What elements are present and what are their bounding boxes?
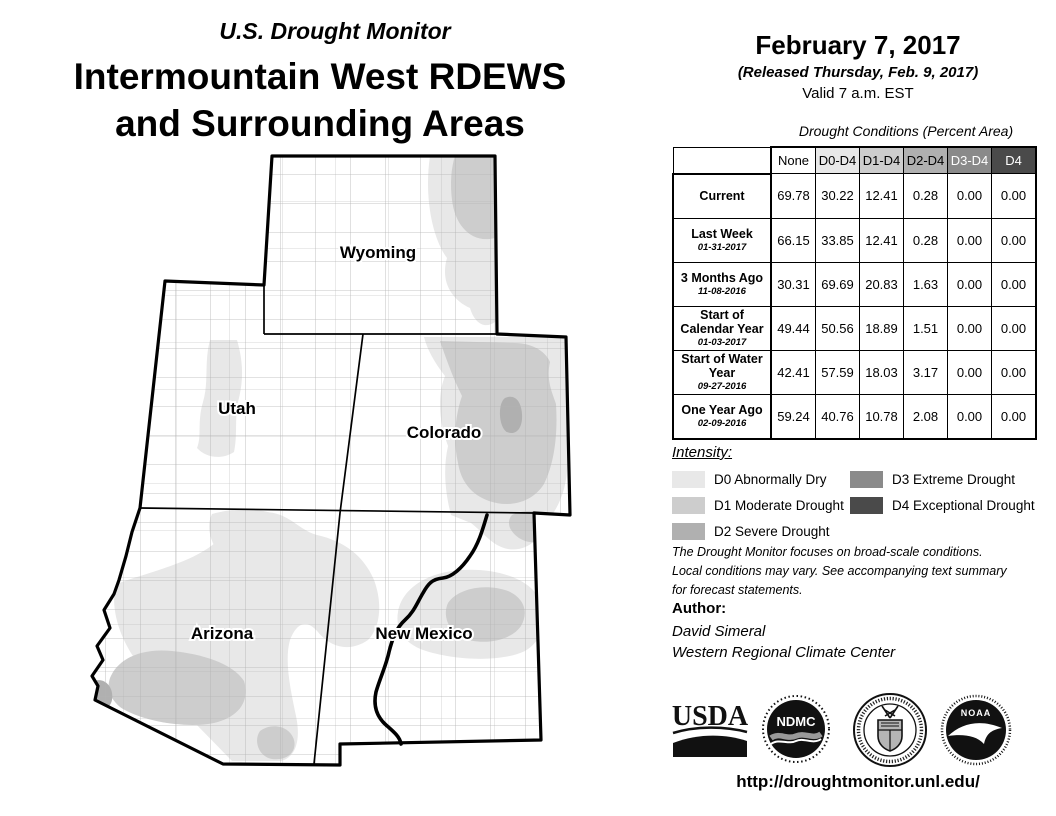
table-row-one-year-ago: One Year Ago02-09-2016 59.24 40.76 10.78… bbox=[673, 394, 1036, 439]
value-cell: 69.69 bbox=[816, 262, 860, 306]
row-label-last-week: Last Week01-31-2017 bbox=[673, 218, 771, 262]
value-cell: 33.85 bbox=[816, 218, 860, 262]
author-name: David Simeral bbox=[672, 621, 895, 642]
author-org: Western Regional Climate Center bbox=[672, 642, 895, 663]
table-header-row: None D0-D4 D1-D4 D2-D4 D3-D4 D4 bbox=[673, 147, 1036, 174]
noaa-logo: NOAA bbox=[938, 692, 1014, 768]
drought-monitor-url: http://droughtmonitor.unl.edu/ bbox=[660, 772, 1056, 792]
value-cell: 18.89 bbox=[860, 306, 904, 350]
table-title: Drought Conditions (Percent Area) bbox=[764, 123, 1048, 139]
intensity-legend: Intensity: D0 Abnormally Dry D1 Moderate… bbox=[672, 444, 1052, 549]
legend-item-d4: D4 Exceptional Drought bbox=[850, 497, 1035, 514]
svg-text:NDMC: NDMC bbox=[777, 714, 817, 729]
value-cell: 30.31 bbox=[771, 262, 816, 306]
value-cell: 0.00 bbox=[948, 174, 992, 219]
row-label-3-months-ago: 3 Months Ago11-08-2016 bbox=[673, 262, 771, 306]
valid-time: Valid 7 a.m. EST bbox=[660, 85, 1056, 102]
legend-item-d1: D1 Moderate Drought bbox=[672, 497, 850, 514]
col-header-d1d4: D1-D4 bbox=[860, 147, 904, 174]
d4-swatch bbox=[850, 497, 883, 514]
value-cell: 12.41 bbox=[860, 218, 904, 262]
value-cell: 1.51 bbox=[904, 306, 948, 350]
d3-swatch bbox=[850, 471, 883, 488]
commerce-seal-logo bbox=[852, 692, 928, 768]
legend-item-d2: D2 Severe Drought bbox=[672, 523, 850, 540]
col-header-none: None bbox=[771, 147, 816, 174]
col-header-d2d4: D2-D4 bbox=[904, 147, 948, 174]
value-cell: 12.41 bbox=[860, 174, 904, 219]
value-cell: 49.44 bbox=[771, 306, 816, 350]
value-cell: 0.00 bbox=[992, 350, 1037, 394]
info-panel: February 7, 2017 (Released Thursday, Feb… bbox=[660, 0, 1056, 816]
table-row-start-water-year: Start of Water Year09-27-2016 42.41 57.5… bbox=[673, 350, 1036, 394]
value-cell: 30.22 bbox=[816, 174, 860, 219]
region-title-line1: Intermountain West RDEWS bbox=[10, 53, 630, 100]
value-cell: 3.17 bbox=[904, 350, 948, 394]
value-cell: 0.00 bbox=[948, 218, 992, 262]
svg-text:NOAA: NOAA bbox=[961, 708, 992, 718]
value-cell: 2.08 bbox=[904, 394, 948, 439]
table-row-3-months-ago: 3 Months Ago11-08-2016 30.31 69.69 20.83… bbox=[673, 262, 1036, 306]
region-title: Intermountain West RDEWS and Surrounding… bbox=[10, 53, 630, 147]
value-cell: 69.78 bbox=[771, 174, 816, 219]
state-label-colorado: Colorado bbox=[407, 423, 482, 442]
author-heading: Author: bbox=[672, 600, 895, 617]
state-label-newmexico: New Mexico bbox=[375, 624, 472, 643]
value-cell: 10.78 bbox=[860, 394, 904, 439]
usda-logo: USDA bbox=[670, 702, 750, 758]
value-cell: 0.28 bbox=[904, 174, 948, 219]
value-cell: 0.28 bbox=[904, 218, 948, 262]
value-cell: 0.00 bbox=[992, 174, 1037, 219]
drought-monitor-page: U.S. Drought Monitor Intermountain West … bbox=[0, 0, 1056, 816]
d0-swatch bbox=[672, 471, 705, 488]
state-label-utah: Utah bbox=[218, 399, 256, 418]
value-cell: 0.00 bbox=[992, 306, 1037, 350]
title-block: U.S. Drought Monitor Intermountain West … bbox=[10, 18, 630, 147]
value-cell: 20.83 bbox=[860, 262, 904, 306]
value-cell: 59.24 bbox=[771, 394, 816, 439]
col-header-d3d4: D3-D4 bbox=[948, 147, 992, 174]
value-cell: 0.00 bbox=[948, 306, 992, 350]
value-cell: 18.03 bbox=[860, 350, 904, 394]
value-cell: 0.00 bbox=[992, 394, 1037, 439]
value-cell: 66.15 bbox=[771, 218, 816, 262]
value-cell: 0.00 bbox=[948, 350, 992, 394]
value-cell: 57.59 bbox=[816, 350, 860, 394]
release-date: (Released Thursday, Feb. 9, 2017) bbox=[660, 64, 1056, 81]
value-cell: 42.41 bbox=[771, 350, 816, 394]
state-label-arizona: Arizona bbox=[191, 624, 254, 643]
table-row-start-calendar-year: Start of Calendar Year01-03-2017 49.44 5… bbox=[673, 306, 1036, 350]
agency-logos: USDA NDMC bbox=[666, 692, 1050, 770]
legend-title: Intensity: bbox=[672, 444, 1052, 461]
region-title-line2: and Surrounding Areas bbox=[10, 100, 630, 147]
row-label-one-year-ago: One Year Ago02-09-2016 bbox=[673, 394, 771, 439]
disclaimer-text: The Drought Monitor focuses on broad-sca… bbox=[672, 543, 1056, 600]
value-cell: 0.00 bbox=[948, 394, 992, 439]
d1-swatch bbox=[672, 497, 705, 514]
row-label-current: Current bbox=[673, 174, 771, 219]
col-header-d0d4: D0-D4 bbox=[816, 147, 860, 174]
value-cell: 1.63 bbox=[904, 262, 948, 306]
col-header-d4: D4 bbox=[992, 147, 1037, 174]
value-cell: 40.76 bbox=[816, 394, 860, 439]
author-block: Author: David Simeral Western Regional C… bbox=[672, 600, 895, 663]
row-label-start-calendar-year: Start of Calendar Year01-03-2017 bbox=[673, 306, 771, 350]
legend-item-d3: D3 Extreme Drought bbox=[850, 471, 1035, 488]
value-cell: 0.00 bbox=[992, 218, 1037, 262]
monitor-title: U.S. Drought Monitor bbox=[40, 18, 630, 45]
legend-item-d0: D0 Abnormally Dry bbox=[672, 471, 850, 488]
d2-swatch bbox=[672, 523, 705, 540]
row-label-start-water-year: Start of Water Year09-27-2016 bbox=[673, 350, 771, 394]
table-row-current: Current 69.78 30.22 12.41 0.28 0.00 0.00 bbox=[673, 174, 1036, 219]
table-corner-cell bbox=[673, 147, 771, 174]
drought-conditions-table: None D0-D4 D1-D4 D2-D4 D3-D4 D4 Current … bbox=[672, 146, 1037, 440]
map-date: February 7, 2017 bbox=[660, 30, 1056, 61]
table-row-last-week: Last Week01-31-2017 66.15 33.85 12.41 0.… bbox=[673, 218, 1036, 262]
value-cell: 50.56 bbox=[816, 306, 860, 350]
ndmc-logo: NDMC bbox=[760, 692, 832, 766]
state-label-wyoming: Wyoming bbox=[340, 243, 416, 262]
value-cell: 0.00 bbox=[992, 262, 1037, 306]
value-cell: 0.00 bbox=[948, 262, 992, 306]
